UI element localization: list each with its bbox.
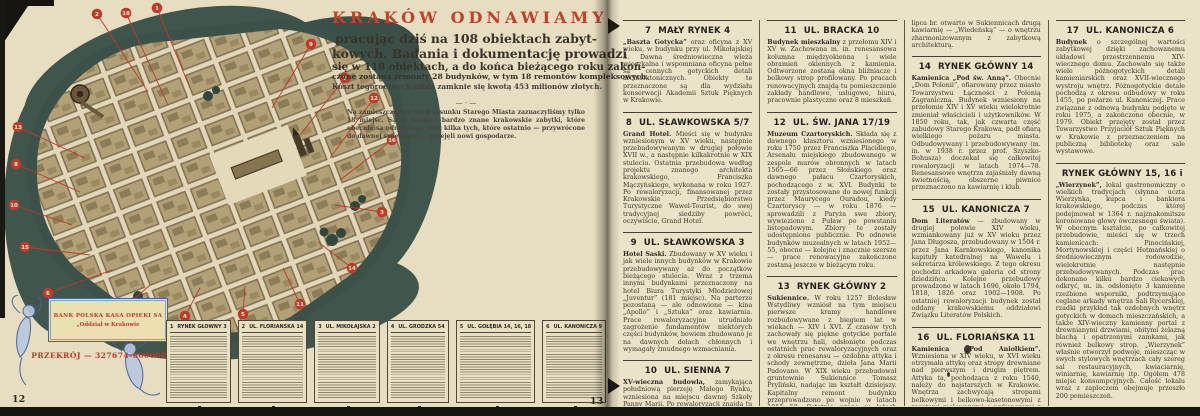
- page-title: KRAKÓW ODNAWIAMY: [332, 8, 600, 27]
- article-column: 17UL. KANONICZA 6Budynek o szczególnej w…: [1048, 20, 1192, 406]
- intro-deck: pracując dziś na 108 obiektach zabyt-kow…: [332, 32, 600, 92]
- svg-text:8: 8: [14, 162, 18, 168]
- title-block: KRAKÓW ODNAWIAMY pracując dziś na 108 ob…: [332, 8, 600, 142]
- intro-deck-line: Koszt tegorocznych robót zamknie się kwo…: [332, 83, 600, 91]
- section-body: Dom Literatów — zbudowany w drugiej poło…: [912, 218, 1041, 320]
- bank-advertisement: BANK POLSKA KASA OPIEKI SA „Oddział w Kr…: [6, 295, 178, 407]
- svg-text:15: 15: [21, 245, 29, 251]
- account-number: PRZEKRÓJ — 327674-600000: [24, 351, 174, 360]
- mini-article-box: 6UL. KANONICZA 9: [542, 320, 606, 403]
- left-page: 218197121631381015617451114 KRAKÓW ODNAW…: [0, 0, 606, 416]
- section-heading-10: 10UL. SIENNA 7: [623, 360, 752, 379]
- page-number-13: 13: [590, 396, 603, 407]
- continuation-arrow-icon: [608, 378, 620, 394]
- continuation-paragraph: lipca br. otwarto w Sukiennicach drugą k…: [912, 20, 1041, 49]
- article-column: lipca br. otwarto w Sukiennicach drugą k…: [904, 20, 1048, 406]
- section-heading-14: 14RYNEK GŁÓWNY 14: [912, 56, 1041, 75]
- mini-article-box: 1RYNEK GŁÓWNY 3: [166, 320, 231, 403]
- mini-article-microtext: [318, 336, 375, 398]
- section-heading-8: 8UL. SŁAWKOWSKA 5/7: [623, 112, 752, 131]
- mini-article-heading: 3UL. MIKOŁAJSKA 2: [318, 324, 375, 333]
- svg-text:18: 18: [122, 11, 130, 17]
- mini-article-heading: 5UL. GOŁĘBIA 14, 16, 18: [460, 324, 531, 333]
- section-body: „Wierzynek”, lokal gastronomiczny o wiel…: [1056, 182, 1185, 400]
- intro-deck-line: pracując dziś na 108 obiektach zabyt-: [332, 32, 600, 47]
- bank-plaque: BANK POLSKA KASA OPIEKI SA „Oddział w Kr…: [48, 298, 168, 342]
- ornament: — · —: [332, 99, 600, 107]
- section-body: XV-wieczna budowla, zamykająca południow…: [623, 379, 752, 406]
- intro-deck-line: czone zostaną remonty 28 budynków, w tym…: [332, 73, 600, 82]
- bank-branch: „Oddział w Krakowie: [49, 322, 167, 328]
- section-body: Kamienica „Pod Aniołkiem”. Wzniesiona w …: [912, 346, 1041, 406]
- svg-text:5: 5: [241, 312, 245, 318]
- mini-article-box: 5UL. GOŁĘBIA 14, 16, 18: [456, 320, 535, 403]
- mini-article-microtext: [460, 336, 531, 398]
- mini-article-heading: 6UL. KANONICZA 9: [546, 324, 602, 333]
- svg-text:11: 11: [296, 302, 304, 308]
- mini-article-microtext: [242, 336, 304, 398]
- svg-text:14: 14: [348, 266, 356, 272]
- map-note: Na zamieszczonym obok rysunku Starego Mi…: [347, 109, 585, 142]
- ink-blotch: [964, 345, 971, 354]
- section-heading-15: 15UL. KANONICZA 7: [912, 199, 1041, 218]
- continuation-arrow-icon: [608, 18, 620, 34]
- section-heading-11: 11UL. BRACKA 10: [767, 20, 896, 39]
- ink-blotch: [947, 372, 950, 377]
- article-columns: 7MAŁY RYNEK 4„Baszta Gotycka” oraz oficy…: [616, 20, 1192, 406]
- section-body: Sukiennice. W roku 1257 Bolesław Wstydli…: [767, 295, 896, 406]
- section-heading-7: 7MAŁY RYNEK 4: [623, 20, 752, 39]
- svg-text:9: 9: [309, 42, 313, 48]
- section-body: Hotel Saski. Zbudowany w XV wieku i jak …: [623, 251, 752, 353]
- mini-article-microtext: [391, 336, 445, 398]
- section-body: Muzeum Czartoryskich. Składa się z dawne…: [767, 131, 896, 269]
- bank-name: BANK POLSKA KASA OPIEKI SA: [49, 313, 167, 319]
- section-heading-16: 16UL. FLORIAŃSKA 11: [912, 327, 1041, 346]
- mini-article-heading: 1RYNEK GŁÓWNY 3: [170, 324, 227, 333]
- right-page: 7MAŁY RYNEK 4„Baszta Gotycka” oraz oficy…: [606, 0, 1200, 416]
- svg-text:10: 10: [10, 203, 18, 209]
- section-heading-13: 13RYNEK GŁÓWNY 2: [767, 276, 896, 295]
- svg-text:13: 13: [14, 125, 22, 131]
- section-body: Budynek mieszkalny z przełomu XIV i XV w…: [767, 39, 896, 105]
- mini-article-strip: 1RYNEK GŁÓWNY 32UL. FLORIAŃSKA 143UL. MI…: [166, 320, 606, 403]
- section-body: Kamienica „Pod św. Anną”. Obecnie „Dom P…: [912, 75, 1041, 192]
- section-body: Grand Hotel. Mieści się w budynku wznies…: [623, 131, 752, 226]
- section-body: Budynek o szczególnej wartości zabytkowe…: [1056, 39, 1185, 156]
- intro-deck-line: kowych. Badania i dokumentację prowadzi: [332, 47, 600, 62]
- magazine-spread: 218197121631381015617451114 KRAKÓW ODNAW…: [0, 0, 1200, 416]
- mini-article-box: 2UL. FLORIAŃSKA 14: [238, 320, 308, 403]
- scan-edge: [0, 407, 1200, 416]
- mini-article-heading: 4UL. GRODZKA 54: [391, 324, 445, 333]
- page-number-12: 12: [12, 394, 25, 405]
- mini-article-box: 4UL. GRODZKA 54: [387, 320, 449, 403]
- mini-article-microtext: [546, 336, 602, 398]
- scan-edge: [0, 0, 5, 318]
- article-column: 11UL. BRACKA 10Budynek mieszkalny z prze…: [759, 20, 903, 406]
- scan-artifacts: [0, 0, 54, 82]
- section-heading-17: 17UL. KANONICZA 6: [1056, 20, 1185, 39]
- mini-article-microtext: [170, 336, 227, 398]
- svg-text:2: 2: [95, 12, 99, 18]
- section-heading-9: 9UL. SŁAWKOWSKA 3: [623, 232, 752, 251]
- section-heading-12: 12UL. ŚW. JANA 17/19: [767, 112, 896, 131]
- mini-article-box: 3UL. MIKOŁAJSKA 2: [314, 320, 379, 403]
- mini-article-heading: 2UL. FLORIAŃSKA 14: [242, 324, 304, 333]
- section-heading-18: 18RYNEK GŁÓWNY 15, 16 i 17: [1056, 163, 1185, 182]
- svg-text:3: 3: [380, 210, 384, 216]
- svg-text:1: 1: [155, 6, 159, 12]
